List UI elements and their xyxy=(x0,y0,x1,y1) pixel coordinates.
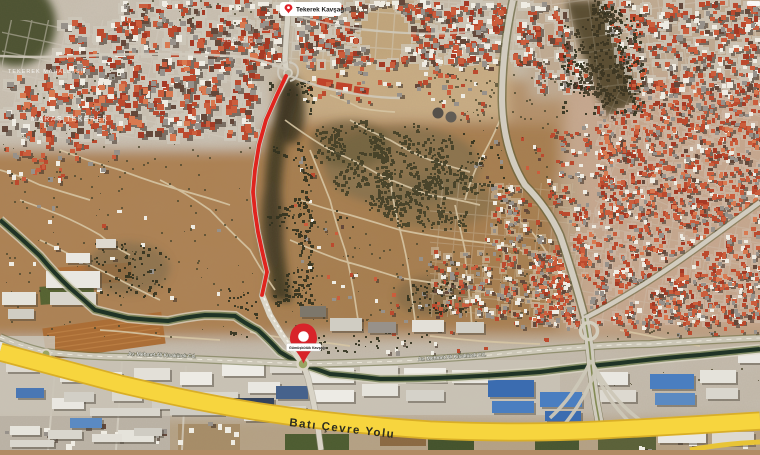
svg-text:Gümüşkütük Kavşağı: Gümüşkütük Kavşağı xyxy=(289,346,326,350)
svg-text:MARAŞ TEKEREK: MARAŞ TEKEREK xyxy=(31,116,109,123)
svg-text:Tekerek Kavşağı: Tekerek Kavşağı xyxy=(296,7,346,14)
svg-text:TEKEREK MAHALLESİ: TEKEREK MAHALLESİ xyxy=(8,68,83,75)
svg-text:BOĞAZİÇİ: BOĞAZİÇİ xyxy=(222,37,256,44)
